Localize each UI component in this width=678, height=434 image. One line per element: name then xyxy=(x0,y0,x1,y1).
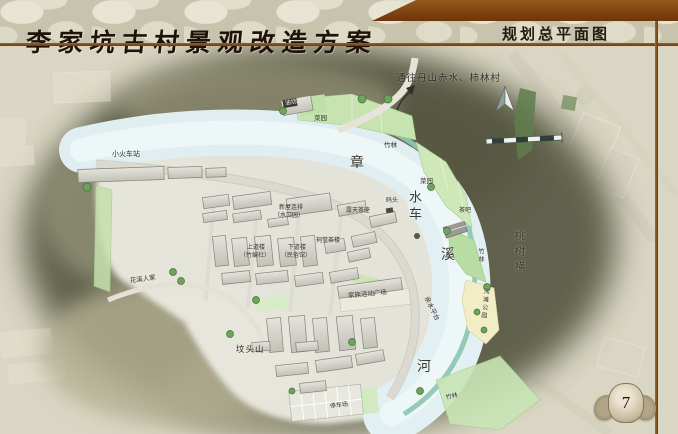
label-river-char-zhang: 章 xyxy=(350,156,364,170)
header-rule xyxy=(0,43,678,46)
label-peach-grove: 桃树横 xyxy=(514,230,525,277)
label-train-station: 小火车站 xyxy=(112,151,140,158)
label-upper-hall: 上道楼 xyxy=(247,245,265,251)
label-waterwheel: 水车 xyxy=(407,190,420,224)
page-number: 7 xyxy=(622,393,631,413)
slide: 通往丹山赤水、柿林村 小火车站 油坊 菜园 竹林 章 菜园 水车 码头 露天茶座… xyxy=(0,0,678,434)
label-road-note: 通往丹山赤水、柿林村 xyxy=(396,74,501,84)
label-new-row-houses: 新屋连排 xyxy=(279,205,303,211)
label-open-air-teahouse: 露天茶座 xyxy=(346,208,370,214)
emblem-stone: 7 xyxy=(608,383,644,423)
label-ancestral-teahouse: 祠堂茶楼 xyxy=(316,238,340,244)
label-upper-hall-sub: （竹编社） xyxy=(240,253,270,259)
page-number-emblem: 7 xyxy=(594,380,656,426)
label-bamboo-grove-1: 竹林 xyxy=(384,143,397,150)
vertical-divider xyxy=(655,21,658,434)
label-river-char-he: 河 xyxy=(417,360,431,374)
label-lower-hall: 下道楼 xyxy=(288,245,306,251)
label-new-row-houses-sub: （水口园） xyxy=(274,213,304,219)
section-title: 规划总平面图 xyxy=(502,23,610,44)
site-plan-drawing xyxy=(0,0,678,434)
label-vegetable-garden-1: 菜园 xyxy=(314,116,327,123)
label-bamboo-grove-2: 竹林 xyxy=(477,248,483,264)
header-brown-banner xyxy=(372,0,678,21)
slide-title: 李家坑古村景观改造方案 xyxy=(24,23,380,59)
label-lower-hall-sub: （民俗馆） xyxy=(281,253,311,259)
label-grave-hill: 坟头山 xyxy=(236,345,265,354)
label-tea-bar: 茶吧 xyxy=(459,208,471,214)
label-vegetable-garden-2: 菜园 xyxy=(420,179,433,186)
label-dock: 码头 xyxy=(386,198,398,204)
label-river-char-xi: 溪 xyxy=(441,248,455,262)
